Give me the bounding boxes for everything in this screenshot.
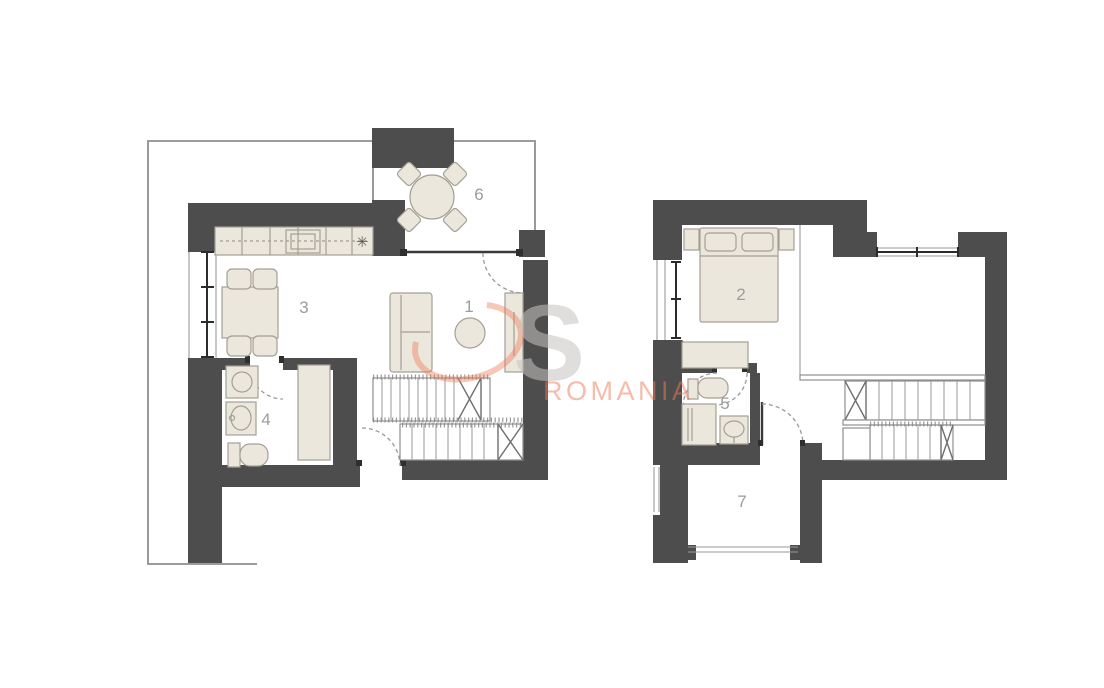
terrace-table xyxy=(410,175,454,219)
window-room7-bottom xyxy=(688,547,798,552)
stair-side-closet xyxy=(843,428,870,460)
pouf-table xyxy=(455,318,485,348)
bathroom-cabinet xyxy=(682,404,716,445)
room-label-2: 2 xyxy=(736,285,745,304)
ground-floor-plan: ✳ 1 3 4 6 xyxy=(148,128,548,564)
nightstand xyxy=(779,229,794,250)
window-left-upper xyxy=(657,260,681,340)
dining-chair xyxy=(253,336,277,356)
stair-flight-lower xyxy=(400,424,523,460)
door-post xyxy=(356,460,362,466)
hall-closet xyxy=(298,365,330,460)
bed-pillow xyxy=(705,233,736,251)
window-glazing xyxy=(671,262,681,338)
window-left-ground xyxy=(189,252,216,358)
door-post xyxy=(245,356,250,363)
room-label-6: 6 xyxy=(474,185,483,204)
door-post xyxy=(279,356,284,363)
hall-door-swing-arc xyxy=(362,428,400,466)
room-label-5: 5 xyxy=(720,394,729,413)
door-post xyxy=(400,249,407,256)
upper-floor-stairs xyxy=(843,381,985,460)
washing-machine xyxy=(226,366,258,398)
dining-table xyxy=(222,287,278,338)
nightstand xyxy=(684,229,699,250)
ground-floor-stairs xyxy=(373,377,523,460)
window-glazing xyxy=(201,252,214,358)
window-frame-lines xyxy=(688,547,798,552)
window-frame-lines xyxy=(189,252,216,358)
dining-chair xyxy=(227,336,251,356)
stair-landing-edge xyxy=(800,375,985,380)
door-post xyxy=(800,440,805,446)
window-top-right-upper xyxy=(877,247,958,257)
watermark-logo-text: ROMANIA xyxy=(543,376,694,406)
door-post xyxy=(758,440,763,446)
room-label-4: 4 xyxy=(261,410,270,429)
upper-floor-furniture xyxy=(682,228,794,445)
floor-plan-page: ✳ 1 3 4 6 xyxy=(0,0,1104,688)
dining-chair xyxy=(253,269,277,289)
stove-symbol: ✳ xyxy=(356,234,369,251)
landing-door-swing-arc xyxy=(762,404,803,445)
dining-chair xyxy=(227,269,251,289)
bed-pillow xyxy=(742,233,773,251)
upper-floor-plan: 2 5 7 xyxy=(653,200,1007,563)
window-frame-lines xyxy=(657,260,665,340)
stair-break-line xyxy=(843,420,985,425)
window-frame-lines xyxy=(654,467,659,512)
room-label-3: 3 xyxy=(299,298,308,317)
toilet-bowl xyxy=(240,444,268,466)
door-post xyxy=(516,249,523,256)
room-label-7: 7 xyxy=(737,492,746,511)
door-post xyxy=(400,460,406,466)
toilet-tank xyxy=(228,443,240,467)
room-label-1: 1 xyxy=(464,297,473,316)
dresser xyxy=(682,342,748,368)
floor-plan-canvas: ✳ 1 3 4 6 xyxy=(0,0,1104,688)
window-room7-left xyxy=(654,467,659,512)
